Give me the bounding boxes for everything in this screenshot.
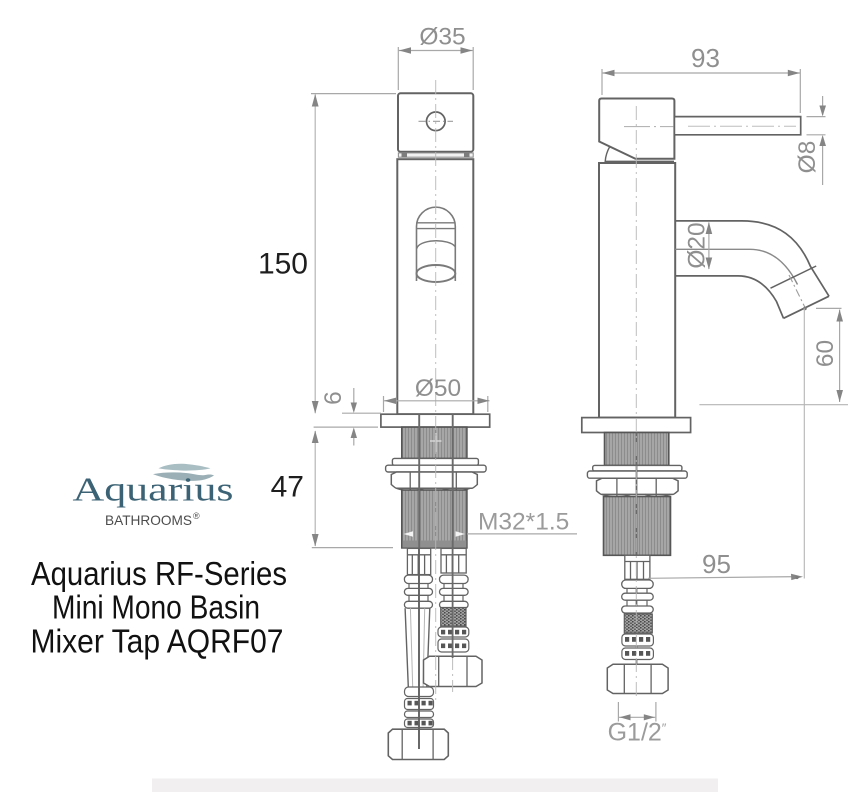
svg-text:M32*1.5: M32*1.5 [478, 509, 569, 536]
svg-text:BATHROOMS: BATHROOMS [105, 512, 192, 528]
svg-text:95: 95 [702, 549, 731, 579]
svg-text:Mixer Tap AQRF07: Mixer Tap AQRF07 [31, 622, 284, 659]
svg-text:G1/2″: G1/2″ [608, 719, 667, 747]
svg-text:Aquarius: Aquarius [73, 472, 234, 509]
svg-text:150: 150 [258, 248, 308, 281]
svg-text:Ø20: Ø20 [684, 222, 711, 268]
svg-text:Mini Mono Basin: Mini Mono Basin [52, 589, 260, 626]
svg-text:60: 60 [812, 340, 839, 367]
svg-text:6: 6 [320, 391, 347, 405]
svg-text:®: ® [193, 511, 200, 521]
svg-text:47: 47 [271, 471, 304, 504]
svg-text:93: 93 [691, 43, 720, 73]
svg-text:Ø8: Ø8 [794, 141, 821, 174]
svg-text:Ø50: Ø50 [415, 375, 461, 402]
svg-text:Ø35: Ø35 [419, 24, 465, 51]
svg-text:Aquarius RF-Series: Aquarius RF-Series [31, 555, 287, 592]
